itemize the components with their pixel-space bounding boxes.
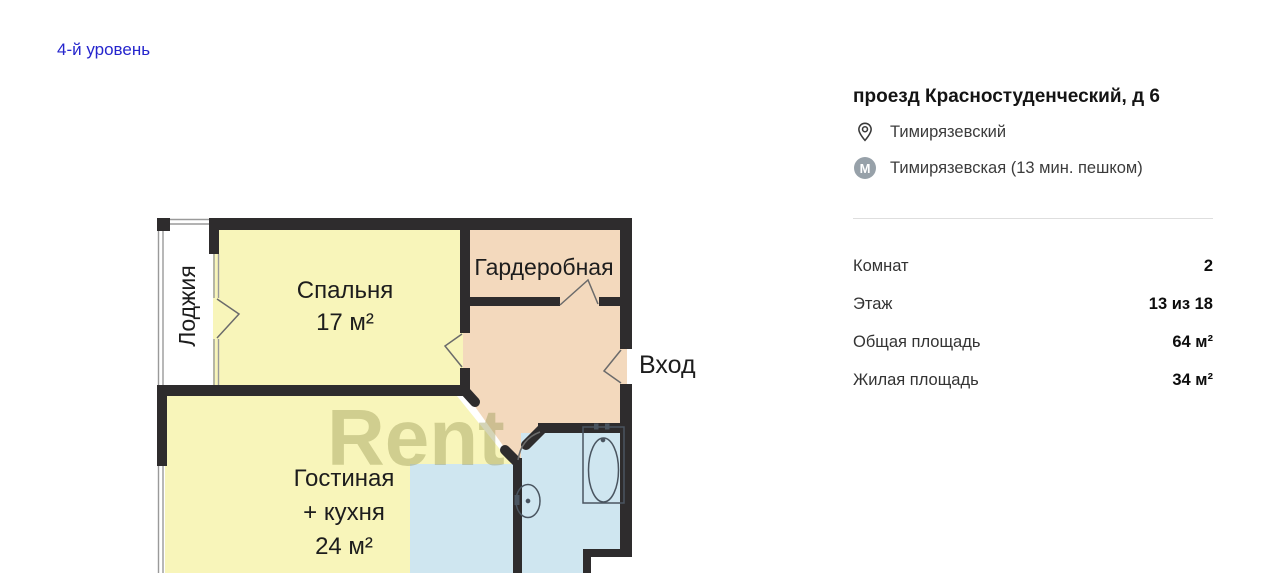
params-table: Комнат 2 Этаж 13 из 18 Общая площадь 64 … bbox=[853, 247, 1213, 399]
living-area-label: 24 м² bbox=[315, 533, 373, 560]
param-value: 64 м² bbox=[1172, 333, 1213, 352]
district-row: Тимирязевский bbox=[853, 120, 1213, 144]
param-label: Комнат bbox=[853, 257, 909, 276]
param-row-total-area: Общая площадь 64 м² bbox=[853, 323, 1213, 361]
param-row-rooms: Комнат 2 bbox=[853, 247, 1213, 285]
location-pin-icon bbox=[853, 120, 877, 144]
bedroom-area-label: 17 м² bbox=[316, 309, 374, 336]
metro-label: Тимирязевская (13 мин. пешком) bbox=[890, 159, 1143, 178]
divider bbox=[853, 218, 1213, 219]
param-value: 2 bbox=[1204, 257, 1213, 276]
param-value: 13 из 18 bbox=[1149, 295, 1213, 314]
living-label-line2: + кухня bbox=[303, 499, 385, 526]
living-label-line1: Гостиная bbox=[294, 465, 395, 492]
floorplan: Rent bbox=[157, 218, 700, 573]
param-label: Общая площадь bbox=[853, 333, 980, 352]
district-label: Тимирязевский bbox=[890, 123, 1006, 142]
wardrobe-label: Гардеробная bbox=[474, 254, 613, 280]
entrance-label: Вход bbox=[639, 351, 696, 379]
param-label: Жилая площадь bbox=[853, 371, 979, 390]
address-title: проезд Красностуденческий, д 6 bbox=[853, 86, 1213, 108]
floorplan-svg: Rent bbox=[157, 218, 700, 573]
property-panel: проезд Красностуденческий, д 6 Тимирязев… bbox=[853, 86, 1213, 399]
bedroom-label: Спальня bbox=[297, 277, 393, 304]
metro-icon: М bbox=[853, 156, 877, 180]
level-link[interactable]: 4-й уровень bbox=[57, 40, 150, 60]
param-value: 34 м² bbox=[1172, 371, 1213, 390]
param-label: Этаж bbox=[853, 295, 892, 314]
param-row-living-area: Жилая площадь 34 м² bbox=[853, 361, 1213, 399]
metro-row: М Тимирязевская (13 мин. пешком) bbox=[853, 156, 1213, 180]
loggia-label: Лоджия bbox=[174, 265, 200, 347]
param-row-floor: Этаж 13 из 18 bbox=[853, 285, 1213, 323]
